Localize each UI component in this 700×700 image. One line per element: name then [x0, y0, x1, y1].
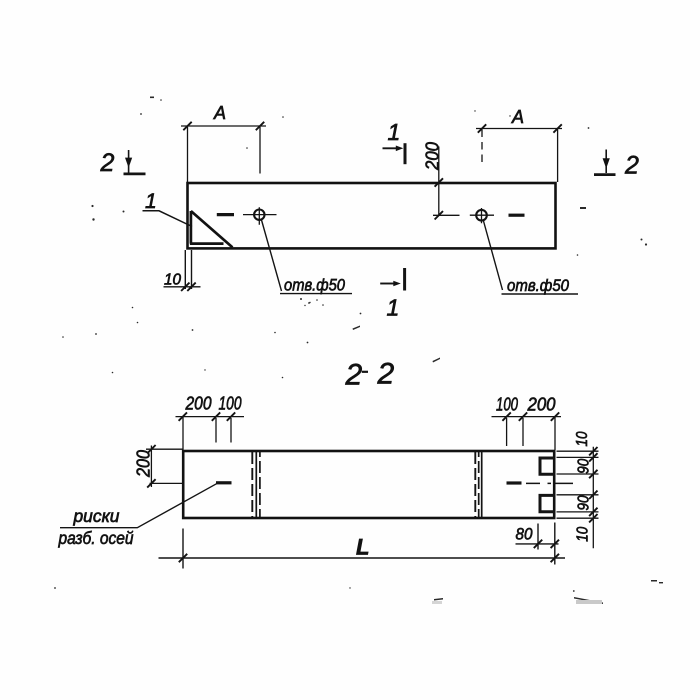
svg-text:отв.ф50: отв.ф50 [507, 276, 569, 295]
svg-text:10: 10 [164, 272, 181, 289]
svg-text:100: 100 [219, 394, 242, 414]
svg-text:90: 90 [576, 459, 593, 474]
svg-text:2: 2 [377, 358, 395, 391]
svg-text:2: 2 [345, 359, 363, 392]
svg-text:L: L [356, 535, 369, 560]
svg-text:риски: риски [73, 506, 120, 526]
svg-text:200: 200 [527, 395, 556, 415]
svg-text:200: 200 [423, 142, 443, 171]
svg-text:2: 2 [100, 149, 115, 177]
svg-text:1: 1 [145, 190, 157, 213]
svg-text:2: 2 [624, 152, 639, 180]
svg-text:А: А [511, 107, 524, 127]
svg-text:разб. осей: разб. осей [58, 528, 134, 548]
svg-text:1: 1 [388, 119, 401, 145]
svg-text:10: 10 [575, 527, 592, 542]
svg-text:А: А [213, 103, 226, 123]
svg-text:200: 200 [185, 394, 212, 414]
svg-text:100: 100 [496, 395, 518, 415]
svg-text:90: 90 [576, 495, 593, 510]
svg-text:80: 80 [516, 525, 533, 544]
svg-text:200: 200 [134, 450, 154, 478]
svg-text:10: 10 [574, 431, 591, 446]
svg-text:отв.ф50: отв.ф50 [284, 276, 345, 295]
svg-text:1: 1 [387, 295, 400, 321]
